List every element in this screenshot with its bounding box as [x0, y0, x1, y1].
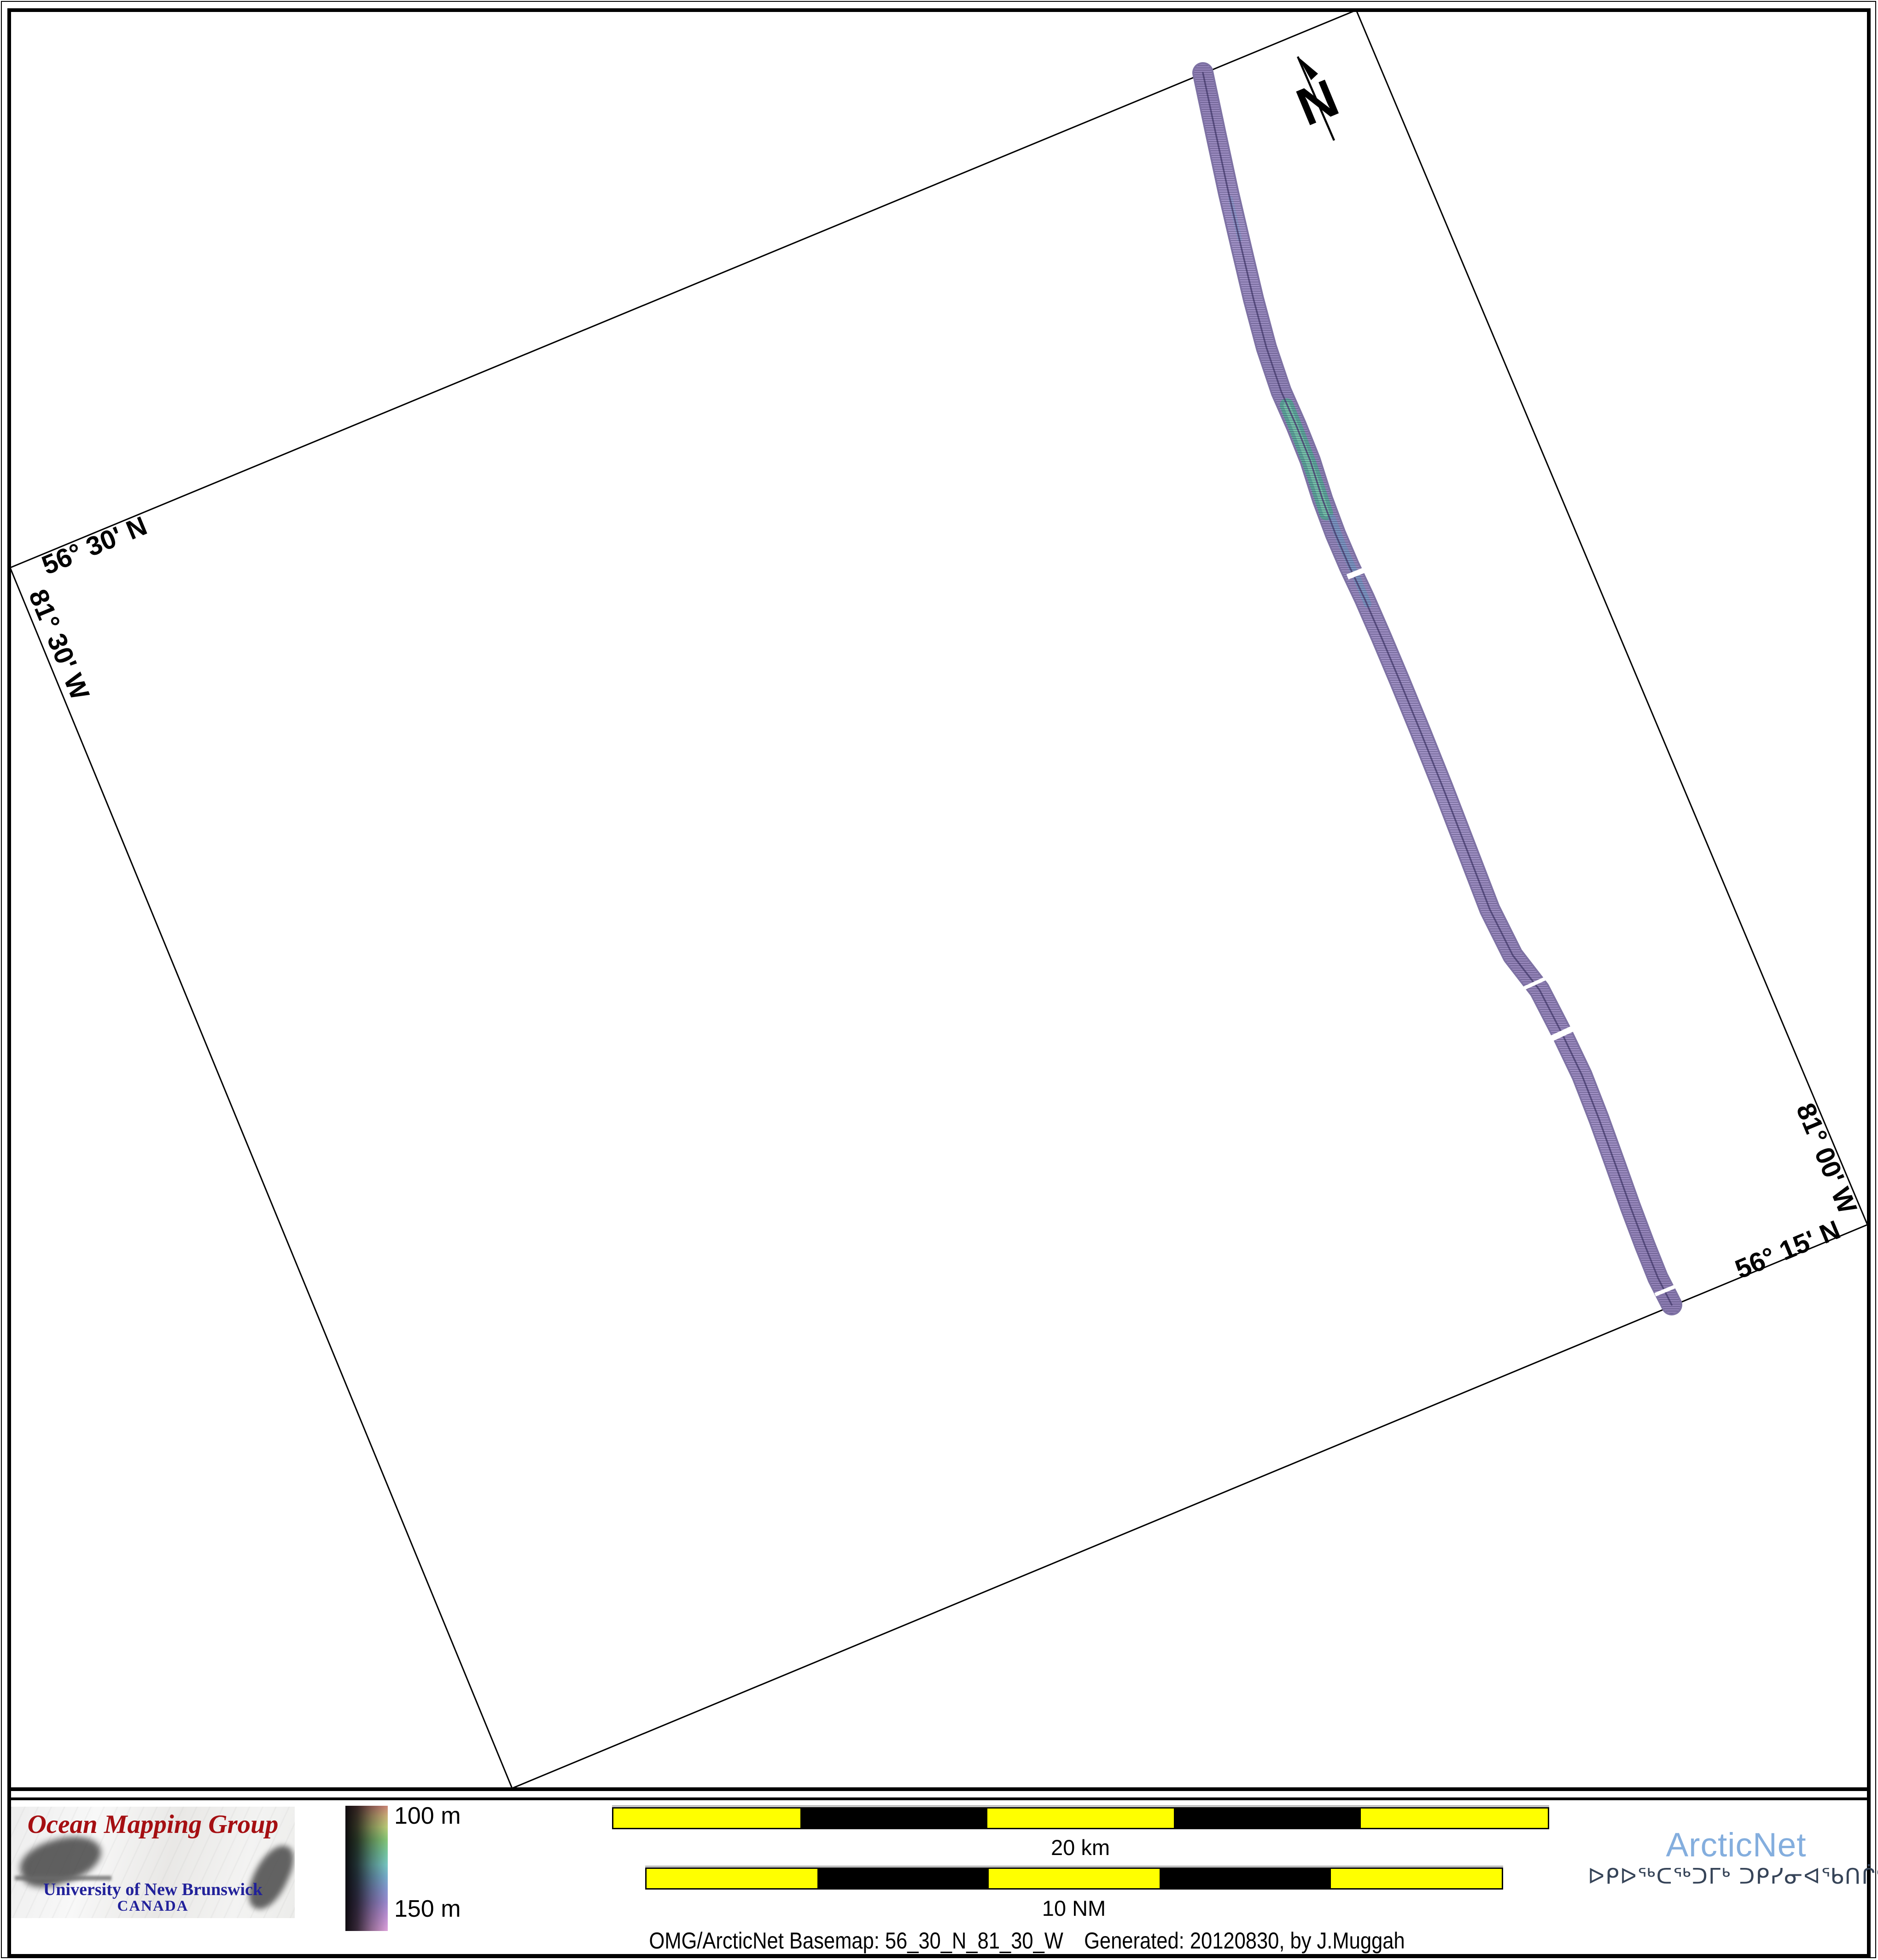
arcticnet-inuktitut-text: ᐅᑭᐅᖅᑕᖅᑐᒥᒃ ᑐᑭᓯᓂᐊᖃᑎᒌᑦ [1588, 1864, 1878, 1889]
km-scalebar-label: 20 km [1051, 1835, 1110, 1860]
scalebar-segment [647, 1869, 817, 1888]
caption-basemap: OMG/ArcticNet Basemap: 56_30_N_81_30_W [649, 1928, 1063, 1954]
scalebar-segment [987, 1809, 1174, 1828]
scalebar-segment [817, 1869, 988, 1888]
basemap-sheet: 56° 30' N 81° 30' W 81° 00' W 56° 15' N … [0, 0, 1878, 1960]
scalebar-segment [1361, 1809, 1548, 1828]
basemap-caption: OMG/ArcticNet Basemap: 56_30_N_81_30_WGe… [649, 1927, 1405, 1954]
scalebar-segment [613, 1809, 800, 1828]
nm-scalebar-label: 10 NM [1042, 1896, 1106, 1921]
colorbar-bottom-label: 150 m [394, 1895, 461, 1923]
scalebar-segment [800, 1809, 987, 1828]
inner-frame [7, 8, 1871, 1958]
km-scalebar-topline [612, 1805, 1549, 1807]
omg-logo: Ocean Mapping Group University of New Br… [11, 1807, 295, 1918]
scalebar-segment [1331, 1869, 1502, 1888]
nm-scalebar-topline [645, 1866, 1503, 1867]
omg-university: University of New Brunswick [43, 1879, 262, 1900]
caption-generated: Generated: 20120830, by J.Muggah [1084, 1928, 1405, 1954]
depth-colorbar [345, 1806, 388, 1931]
colorbar-top-label: 100 m [394, 1802, 461, 1830]
scalebar-segment [989, 1869, 1160, 1888]
omg-country: CANADA [117, 1898, 189, 1915]
km-scalebar [612, 1807, 1549, 1829]
omg-title: Ocean Mapping Group [28, 1809, 279, 1839]
colorbar-shade-axis [345, 1806, 388, 1931]
arcticnet-logo: ArcticNet [1666, 1826, 1806, 1864]
scalebar-segment [1160, 1869, 1330, 1888]
scalebar-segment [1174, 1809, 1361, 1828]
nm-scalebar [645, 1867, 1503, 1890]
